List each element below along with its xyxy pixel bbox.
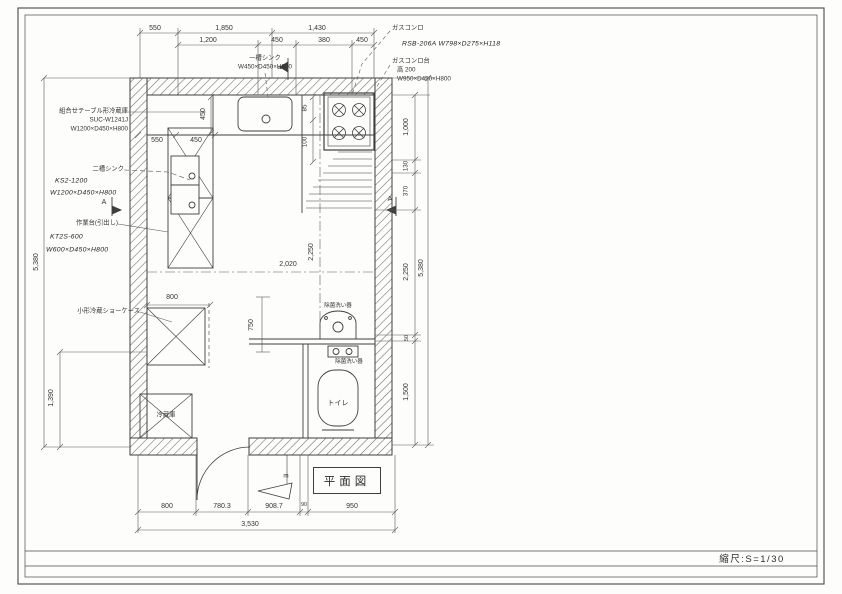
combo-fridge-label: 組合せテーブル形冷蔵庫 <box>59 109 128 116</box>
dim-top-1430: 1,430 <box>308 25 326 33</box>
dim-right-1000: 1,000 <box>403 118 411 136</box>
gas-range-label: ガスコンロ <box>392 26 423 33</box>
gas-range-stand-size: W950×D450×H800 <box>397 77 451 84</box>
section-m-bottom-label: m <box>283 474 288 481</box>
dim-aisle-750: 750 <box>248 319 256 331</box>
toilet-fixtures <box>318 311 358 430</box>
dim-int-450: 450 <box>190 137 202 145</box>
toilet-partition <box>249 339 375 438</box>
scale-label: 縮尺:S=1/30 <box>719 551 785 565</box>
work-table-model: KT2S-600 <box>50 233 83 240</box>
dim-sink-depth: 450 <box>200 108 208 120</box>
dim-bot-overall: 3,530 <box>241 521 259 529</box>
dim-room-width: 2,020 <box>279 261 297 269</box>
section-a-left-label: A <box>102 199 107 207</box>
entrance-door <box>197 447 250 500</box>
dim-right-130: 130 <box>404 161 411 172</box>
showcase-label: 小形冷蔵ショーケース <box>77 309 140 316</box>
dim-top-450b: 450 <box>356 37 368 45</box>
section-marks <box>112 58 396 499</box>
leader-lines <box>118 31 390 322</box>
dim-left-1390: 1,390 <box>48 389 56 407</box>
combo-fridge-size: W1200×D450×H800 <box>71 127 128 134</box>
dim-right-1500: 1,500 <box>403 383 411 401</box>
single-sink-label: 一槽シンク <box>249 56 280 63</box>
dim-int-550: 550 <box>151 137 163 145</box>
double-sink-model: KS2-1200 <box>55 177 88 184</box>
dim-right-50: 50 <box>404 335 410 341</box>
dim-top-1850: 1,850 <box>215 25 233 33</box>
dim-bot-90: 90 <box>301 502 307 508</box>
dim-right-2250: 2,250 <box>403 263 411 281</box>
gas-range-symbol <box>324 93 374 150</box>
left-equipment-run <box>168 128 213 268</box>
dim-showcase-800: 800 <box>166 294 178 302</box>
section-m-top-label: m <box>277 63 282 70</box>
drawing-sheet: 550 1,850 1,430 1,200 450 380 450 ガスコンロ … <box>0 0 842 594</box>
work-table-size: W600×D450×H800 <box>46 246 108 253</box>
range-stand-shading <box>306 152 372 208</box>
plan-title-box: 平面図 <box>313 467 381 494</box>
showcase-symbol <box>147 303 209 368</box>
dim-bot-908: 908.7 <box>265 503 283 511</box>
dim-range-offset-100: 100 <box>303 137 310 148</box>
gas-range-spec: RSB-206A W798×D275×H118 <box>402 40 500 47</box>
dim-bot-780: 780.3 <box>213 503 231 511</box>
dim-top-1200: 1,200 <box>199 37 217 45</box>
dim-bot-950: 950 <box>346 503 358 511</box>
work-table-label: 作業台(引出し) <box>76 221 118 228</box>
dim-top-450a: 450 <box>271 37 283 45</box>
dim-range-offset-85: 85 <box>303 104 310 111</box>
dim-right-370: 370 <box>404 186 411 197</box>
combo-fridge-model: SUC-W1241J <box>90 118 129 125</box>
dim-bot-800: 800 <box>161 503 173 511</box>
sanitizer-lower-label: 除菌洗い器 <box>335 359 363 365</box>
dim-left-overall: 5,380 <box>33 253 41 271</box>
dim-room-height: 2,250 <box>308 243 316 261</box>
gas-range-stand-label: ガスコンロ台 <box>392 59 430 66</box>
refrigerator-label: 冷蔵庫 <box>157 413 176 420</box>
dim-right-overall: 5,380 <box>418 259 426 277</box>
toilet-label: トイレ <box>328 400 349 408</box>
double-sink-size: W1200×D450×H800 <box>50 189 116 196</box>
gas-range-stand-height: 高 200 <box>397 68 416 75</box>
dim-top-550: 550 <box>149 25 161 33</box>
dim-top-380: 380 <box>318 37 330 45</box>
plan-linework <box>0 0 842 594</box>
section-a-right-label: A <box>388 196 393 204</box>
sanitizer-upper-label: 除菌洗い器 <box>324 303 352 309</box>
single-sink-size: W450×D450×H800 <box>238 65 292 72</box>
double-sink-label: 二槽シンク <box>93 167 124 174</box>
plan-title: 平面図 <box>324 473 371 489</box>
